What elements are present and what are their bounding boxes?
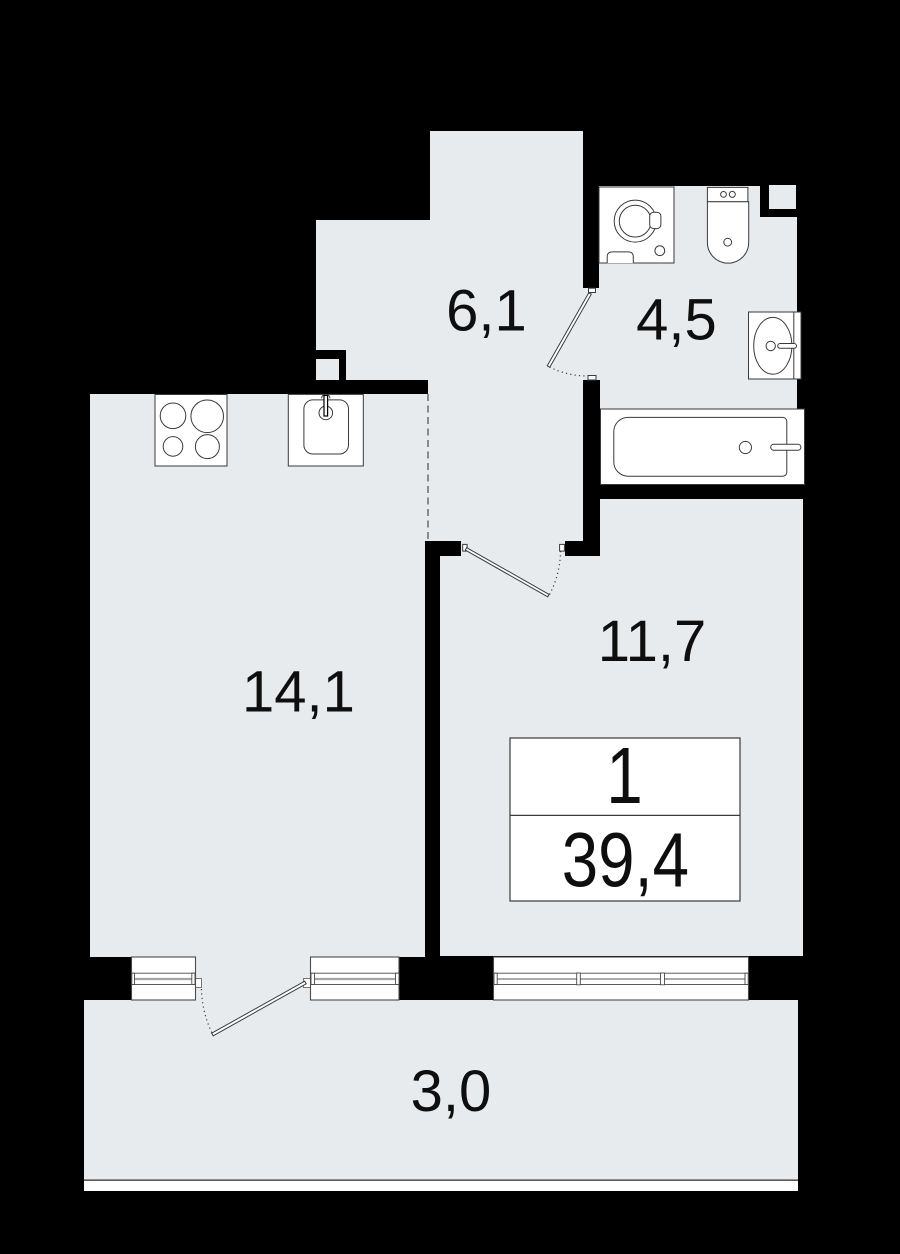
- svg-text:39,4: 39,4: [562, 818, 689, 904]
- svg-text:11,7: 11,7: [598, 609, 707, 674]
- svg-text:4,5: 4,5: [636, 288, 717, 353]
- svg-text:6,1: 6,1: [446, 278, 527, 343]
- svg-text:1: 1: [606, 731, 642, 821]
- svg-text:3,0: 3,0: [411, 1059, 492, 1124]
- svg-text:14,1: 14,1: [242, 660, 355, 725]
